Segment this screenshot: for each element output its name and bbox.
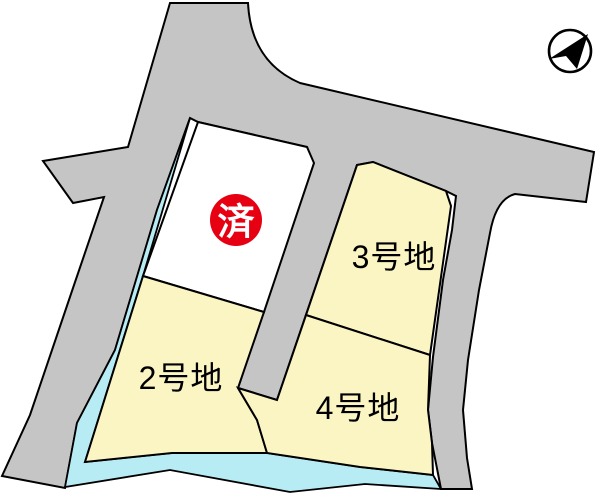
lot-4-label: 4号地: [316, 390, 401, 426]
lot-map: 済 2号地 3号地 4号地: [0, 0, 600, 493]
sold-badge: 済: [210, 194, 262, 246]
north-arrow-icon: [549, 30, 591, 72]
sold-badge-text: 済: [218, 202, 256, 243]
lot-3-label: 3号地: [352, 239, 437, 275]
lot-2-label: 2号地: [139, 360, 224, 396]
